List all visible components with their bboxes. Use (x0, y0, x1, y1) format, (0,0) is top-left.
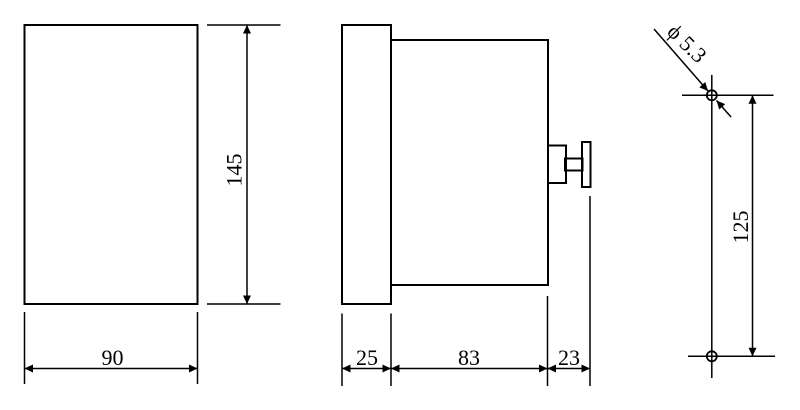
svg-text:83: 83 (458, 345, 480, 370)
svg-text:25: 25 (356, 345, 378, 370)
svg-text:145: 145 (222, 154, 247, 187)
svg-text:23: 23 (558, 345, 580, 370)
svg-text:90: 90 (102, 345, 124, 370)
svg-text:125: 125 (728, 211, 753, 244)
